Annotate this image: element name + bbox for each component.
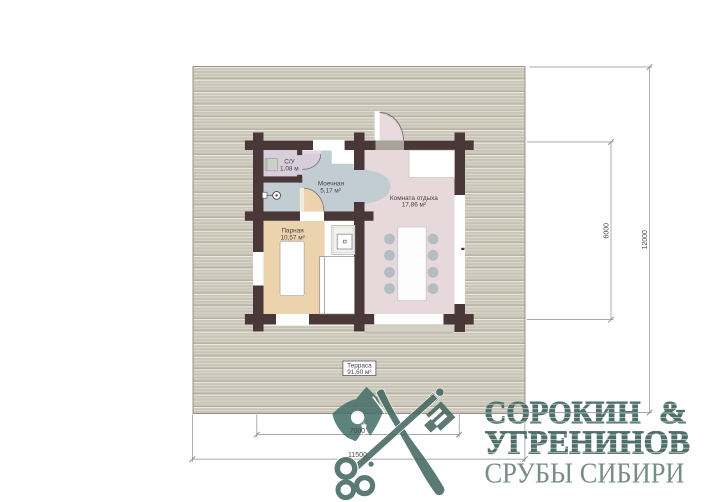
svg-text:12000: 12000 bbox=[642, 230, 649, 250]
svg-text:7000: 7000 bbox=[350, 428, 366, 435]
svg-text:СРУБЫ СИБИРИ: СРУБЫ СИБИРИ bbox=[485, 458, 685, 490]
svg-text:91,60 м²: 91,60 м² bbox=[347, 369, 371, 376]
svg-text:1,08 м: 1,08 м bbox=[280, 165, 299, 172]
svg-text:10,57 м²: 10,57 м² bbox=[280, 235, 304, 242]
svg-text:5,17 м²: 5,17 м² bbox=[320, 187, 341, 194]
svg-text:11500: 11500 bbox=[348, 452, 367, 459]
svg-text:УГРЕНИНОВ: УГРЕНИНОВ bbox=[485, 424, 691, 461]
svg-text:17,86 м²: 17,86 м² bbox=[402, 202, 426, 209]
svg-text:6000: 6000 bbox=[603, 223, 610, 239]
svg-text:Моечная: Моечная bbox=[318, 180, 345, 187]
